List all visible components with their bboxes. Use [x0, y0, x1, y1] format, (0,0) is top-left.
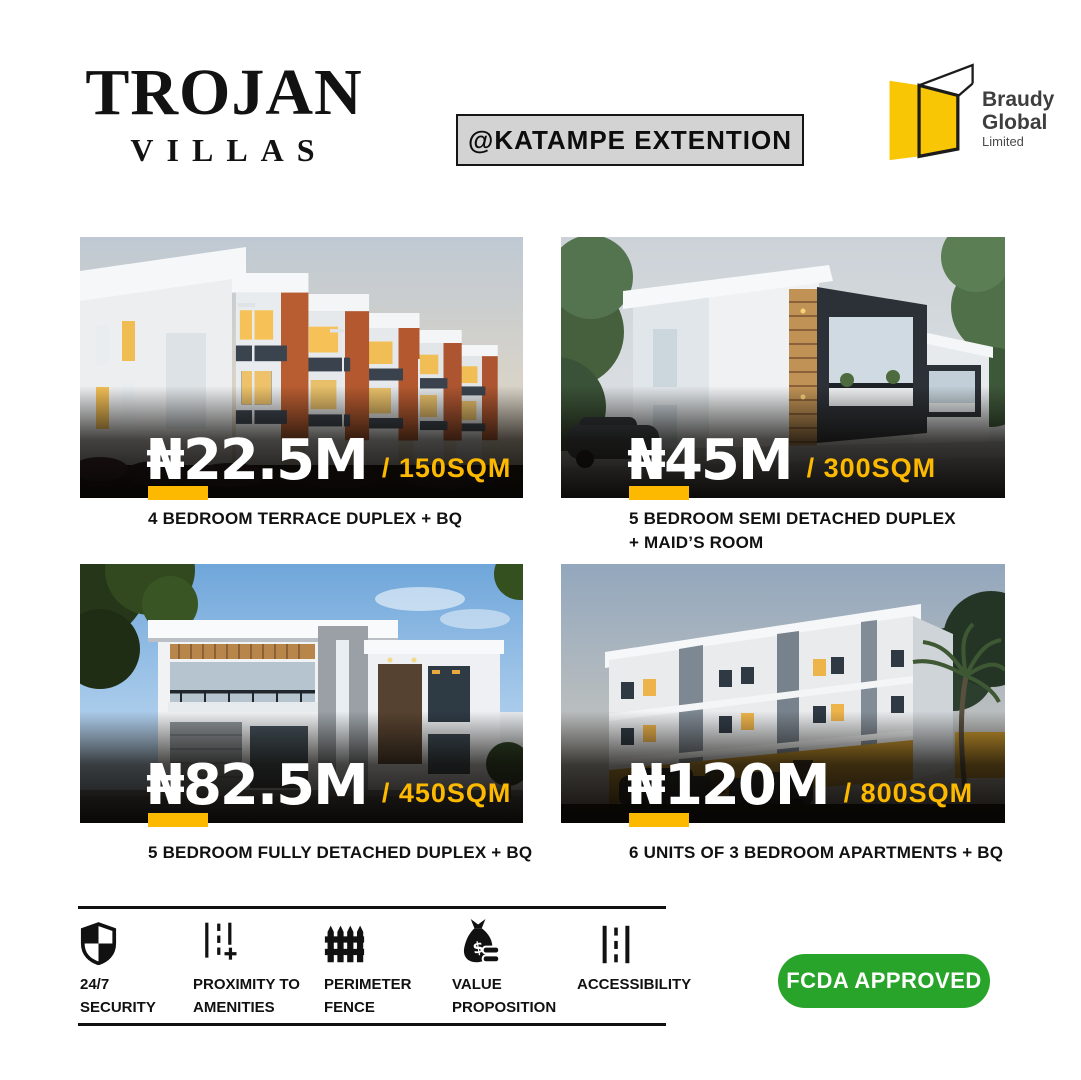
- price-text: ₦22.5M: [146, 433, 367, 489]
- accent-bar: [629, 486, 689, 500]
- feature-label: VALUE PROPOSITION: [452, 974, 556, 1019]
- listing-card-apartments: ₦120M / 800SQM: [561, 564, 1005, 823]
- proximity-road-icon: [199, 919, 300, 965]
- accent-bar: [148, 486, 208, 500]
- money-bag-icon: $: [456, 919, 556, 965]
- price-row: ₦120M / 800SQM: [627, 758, 973, 814]
- shield-icon: [80, 919, 156, 965]
- trojan-villas-flyer: TROJAN VILLAS @KATAMPE EXTENTION Braudy …: [0, 0, 1081, 1080]
- road-icon: [599, 919, 691, 965]
- area-text: / 450SQM: [382, 780, 512, 807]
- listing-caption: 5 BEDROOM FULLY DETACHED DUPLEX + BQ: [148, 841, 532, 865]
- fcda-approved-label: FCDA APPROVED: [786, 968, 982, 994]
- company-name-line1: Braudy: [982, 88, 1054, 111]
- feature-accessibility: ACCESSIBILITY: [577, 919, 691, 997]
- area-text: / 150SQM: [382, 455, 512, 482]
- listing-caption: 4 BEDROOM TERRACE DUPLEX + BQ: [148, 507, 462, 531]
- brand-subtitle: VILLAS: [78, 132, 380, 169]
- price-row: ₦22.5M / 150SQM: [146, 433, 511, 489]
- feature-value: $ VALUE PROPOSITION: [452, 919, 556, 1019]
- listing-caption: 6 UNITS OF 3 BEDROOM APARTMENTS + BQ: [629, 841, 1003, 865]
- price-row: ₦45M / 300SQM: [627, 433, 936, 489]
- listing-card-fully-detached: ₦82.5M / 450SQM: [80, 564, 523, 823]
- area-text: / 300SQM: [807, 455, 937, 482]
- feature-proximity: PROXIMITY TO AMENITIES: [193, 919, 300, 1019]
- location-badge: @KATAMPE EXTENTION: [456, 114, 804, 166]
- price-text: ₦45M: [627, 433, 792, 489]
- company-name: Braudy Global Limited: [982, 56, 1054, 170]
- brand-title: TROJAN: [68, 60, 380, 126]
- feature-security: 24/7 SECURITY: [80, 919, 156, 1019]
- price-text: ₦82.5M: [146, 758, 367, 814]
- open-door-icon: [884, 56, 980, 170]
- fcda-approved-badge: FCDA APPROVED: [778, 954, 990, 1008]
- feature-label: ACCESSIBILITY: [577, 974, 691, 997]
- price-row: ₦82.5M / 450SQM: [146, 758, 511, 814]
- company-name-line3: Limited: [982, 135, 1054, 149]
- divider-bottom: [78, 1023, 666, 1026]
- fence-icon: [324, 919, 412, 965]
- accent-bar: [148, 813, 208, 827]
- company-logo: Braudy Global Limited: [884, 56, 1054, 170]
- listing-card-terrace-duplex: ₦22.5M / 150SQM: [80, 237, 523, 498]
- location-badge-text: @KATAMPE EXTENTION: [468, 125, 792, 156]
- feature-label: PROXIMITY TO AMENITIES: [193, 974, 300, 1019]
- brand-block: TROJAN VILLAS: [68, 60, 380, 169]
- divider-top: [78, 906, 666, 909]
- listing-caption: 5 BEDROOM SEMI DETACHED DUPLEX + MAID’S …: [629, 507, 956, 555]
- company-name-line2: Global: [982, 111, 1054, 134]
- feature-label: 24/7 SECURITY: [80, 974, 156, 1019]
- price-text: ₦120M: [627, 758, 829, 814]
- area-text: / 800SQM: [844, 780, 974, 807]
- accent-bar: [629, 813, 689, 827]
- feature-fence: PERIMETER FENCE: [324, 919, 412, 1019]
- feature-label: PERIMETER FENCE: [324, 974, 412, 1019]
- listing-card-semi-detached: ₦45M / 300SQM: [561, 237, 1005, 498]
